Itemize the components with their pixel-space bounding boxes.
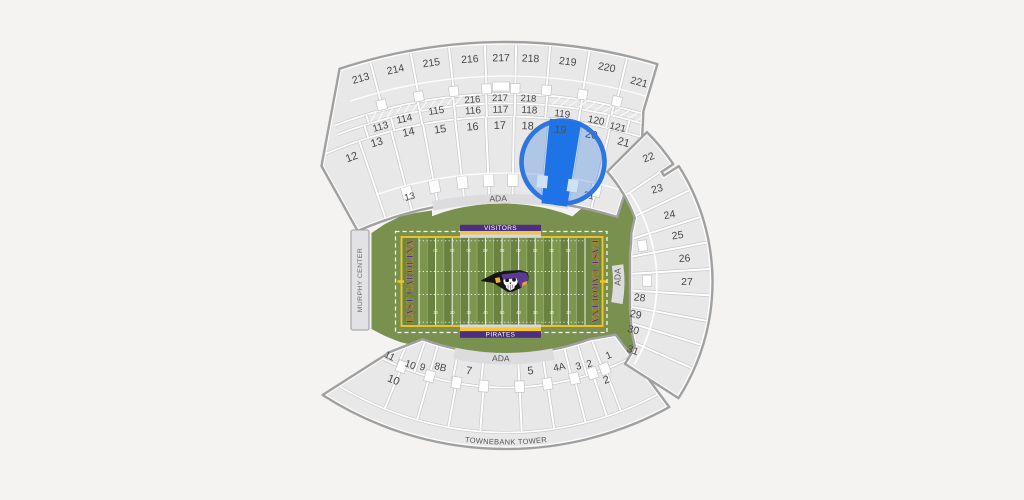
svg-text:5: 5: [527, 365, 534, 378]
svg-text:118: 118: [521, 105, 538, 117]
svg-text:26: 26: [678, 252, 691, 265]
svg-text:117: 117: [492, 105, 509, 116]
svg-text:40: 40: [482, 248, 487, 253]
svg-text:30: 30: [466, 248, 471, 253]
svg-text:10: 10: [433, 248, 438, 253]
svg-text:219: 219: [558, 55, 577, 69]
svg-text:20: 20: [549, 310, 554, 315]
svg-text:18: 18: [521, 120, 534, 133]
svg-text:28: 28: [633, 291, 646, 304]
svg-text:20: 20: [449, 248, 454, 253]
svg-text:30: 30: [532, 248, 537, 253]
svg-text:218: 218: [520, 93, 536, 105]
svg-text:40: 40: [516, 248, 521, 253]
svg-text:ADA: ADA: [612, 268, 622, 286]
svg-text:10: 10: [433, 310, 438, 315]
svg-text:17: 17: [494, 120, 506, 132]
svg-text:217: 217: [492, 52, 510, 64]
svg-text:29: 29: [629, 308, 643, 322]
svg-text:10: 10: [565, 248, 570, 253]
svg-text:116: 116: [465, 105, 482, 117]
svg-text:25: 25: [671, 229, 684, 243]
svg-text:VISITORS: VISITORS: [484, 225, 517, 232]
svg-text:EAST CAROLINA: EAST CAROLINA: [589, 240, 600, 323]
svg-text:24: 24: [663, 208, 677, 222]
svg-text:10: 10: [566, 310, 571, 315]
svg-text:20: 20: [549, 248, 554, 253]
svg-text:16: 16: [466, 121, 479, 134]
svg-text:MURPHY CENTER: MURPHY CENTER: [357, 248, 364, 312]
svg-text:40: 40: [516, 310, 521, 315]
svg-text:27: 27: [681, 276, 693, 288]
svg-text:ADA: ADA: [489, 193, 507, 203]
svg-text:217: 217: [492, 93, 508, 104]
svg-text:50: 50: [500, 310, 505, 315]
svg-text:30: 30: [533, 310, 538, 315]
svg-text:20: 20: [450, 310, 455, 315]
svg-text:50: 50: [499, 248, 504, 253]
svg-text:PIRATES: PIRATES: [486, 332, 516, 339]
svg-text:15: 15: [433, 123, 447, 137]
svg-text:30: 30: [466, 310, 471, 315]
svg-text:216: 216: [464, 94, 481, 106]
svg-text:19: 19: [553, 124, 567, 137]
svg-text:40: 40: [483, 310, 488, 315]
svg-text:218: 218: [521, 52, 539, 65]
svg-text:EAST CAROLINA: EAST CAROLINA: [405, 240, 416, 323]
svg-text:215: 215: [422, 56, 441, 70]
svg-text:216: 216: [461, 53, 479, 66]
svg-text:ADA: ADA: [492, 353, 510, 363]
